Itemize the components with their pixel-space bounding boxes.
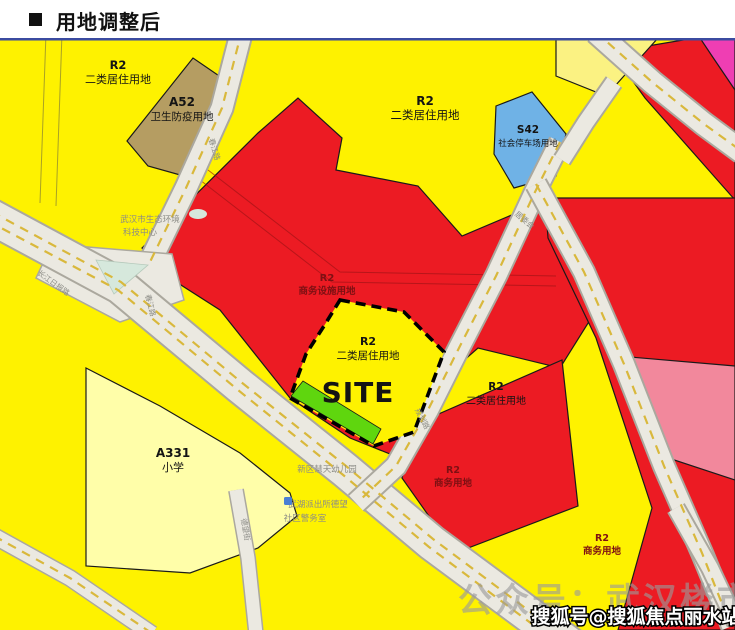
label-s42-name: 社会停车场用地 bbox=[498, 138, 558, 149]
label-southeastbiz-code: R2 bbox=[595, 533, 609, 544]
label-s42-code: S42 bbox=[517, 124, 539, 136]
map-top-border bbox=[0, 38, 735, 41]
square-bullet-icon bbox=[29, 13, 42, 26]
page-header: 用地调整后 bbox=[0, 0, 735, 38]
label-kindergarten: 新区慧天幼儿园 bbox=[297, 464, 357, 475]
label-a52-name: 卫生防疫用地 bbox=[151, 110, 214, 123]
label-east-code: R2 bbox=[488, 381, 503, 393]
label-topleft-code: R2 bbox=[110, 58, 127, 72]
label-site-name: 二类居住用地 bbox=[337, 349, 400, 362]
label-east-name: 二类居住用地 bbox=[466, 394, 526, 407]
label-police-line1: 武湖派出所德望 bbox=[288, 499, 348, 510]
label-topcenter-code: R2 bbox=[416, 94, 434, 108]
median-island-small bbox=[189, 209, 207, 219]
label-southbiz-name: 商务用地 bbox=[434, 477, 473, 489]
label-site-code: R2 bbox=[360, 335, 376, 348]
label-site-mark: SITE bbox=[322, 376, 395, 409]
label-eco-line1: 武汉市生态环境 bbox=[120, 214, 180, 225]
label-a331-code: A331 bbox=[156, 446, 190, 460]
label-police-line2: 社区警务室 bbox=[284, 513, 327, 524]
label-bizfacility-code: R2 bbox=[320, 273, 335, 284]
label-topleft-name: 二类居住用地 bbox=[85, 72, 151, 86]
watermark-white: 搜狐号@搜狐焦点丽水站 bbox=[531, 605, 735, 628]
label-a331-name: 小学 bbox=[162, 460, 184, 474]
label-bizfacility-name: 商务设施用地 bbox=[298, 285, 356, 297]
label-eco-line2: 科技中心 bbox=[123, 227, 158, 238]
land-use-map: R2 二类居住用地 A52 卫生防疫用地 R2 二类居住用地 S42 社会停车场… bbox=[0, 38, 735, 630]
label-southeastbiz-name: 商务用地 bbox=[583, 545, 622, 557]
label-southbiz-code: R2 bbox=[446, 465, 460, 476]
label-a52-code: A52 bbox=[169, 95, 195, 109]
page-title: 用地调整后 bbox=[56, 6, 161, 35]
police-poi-icon bbox=[284, 497, 292, 505]
label-topcenter-name: 二类居住用地 bbox=[391, 108, 460, 122]
